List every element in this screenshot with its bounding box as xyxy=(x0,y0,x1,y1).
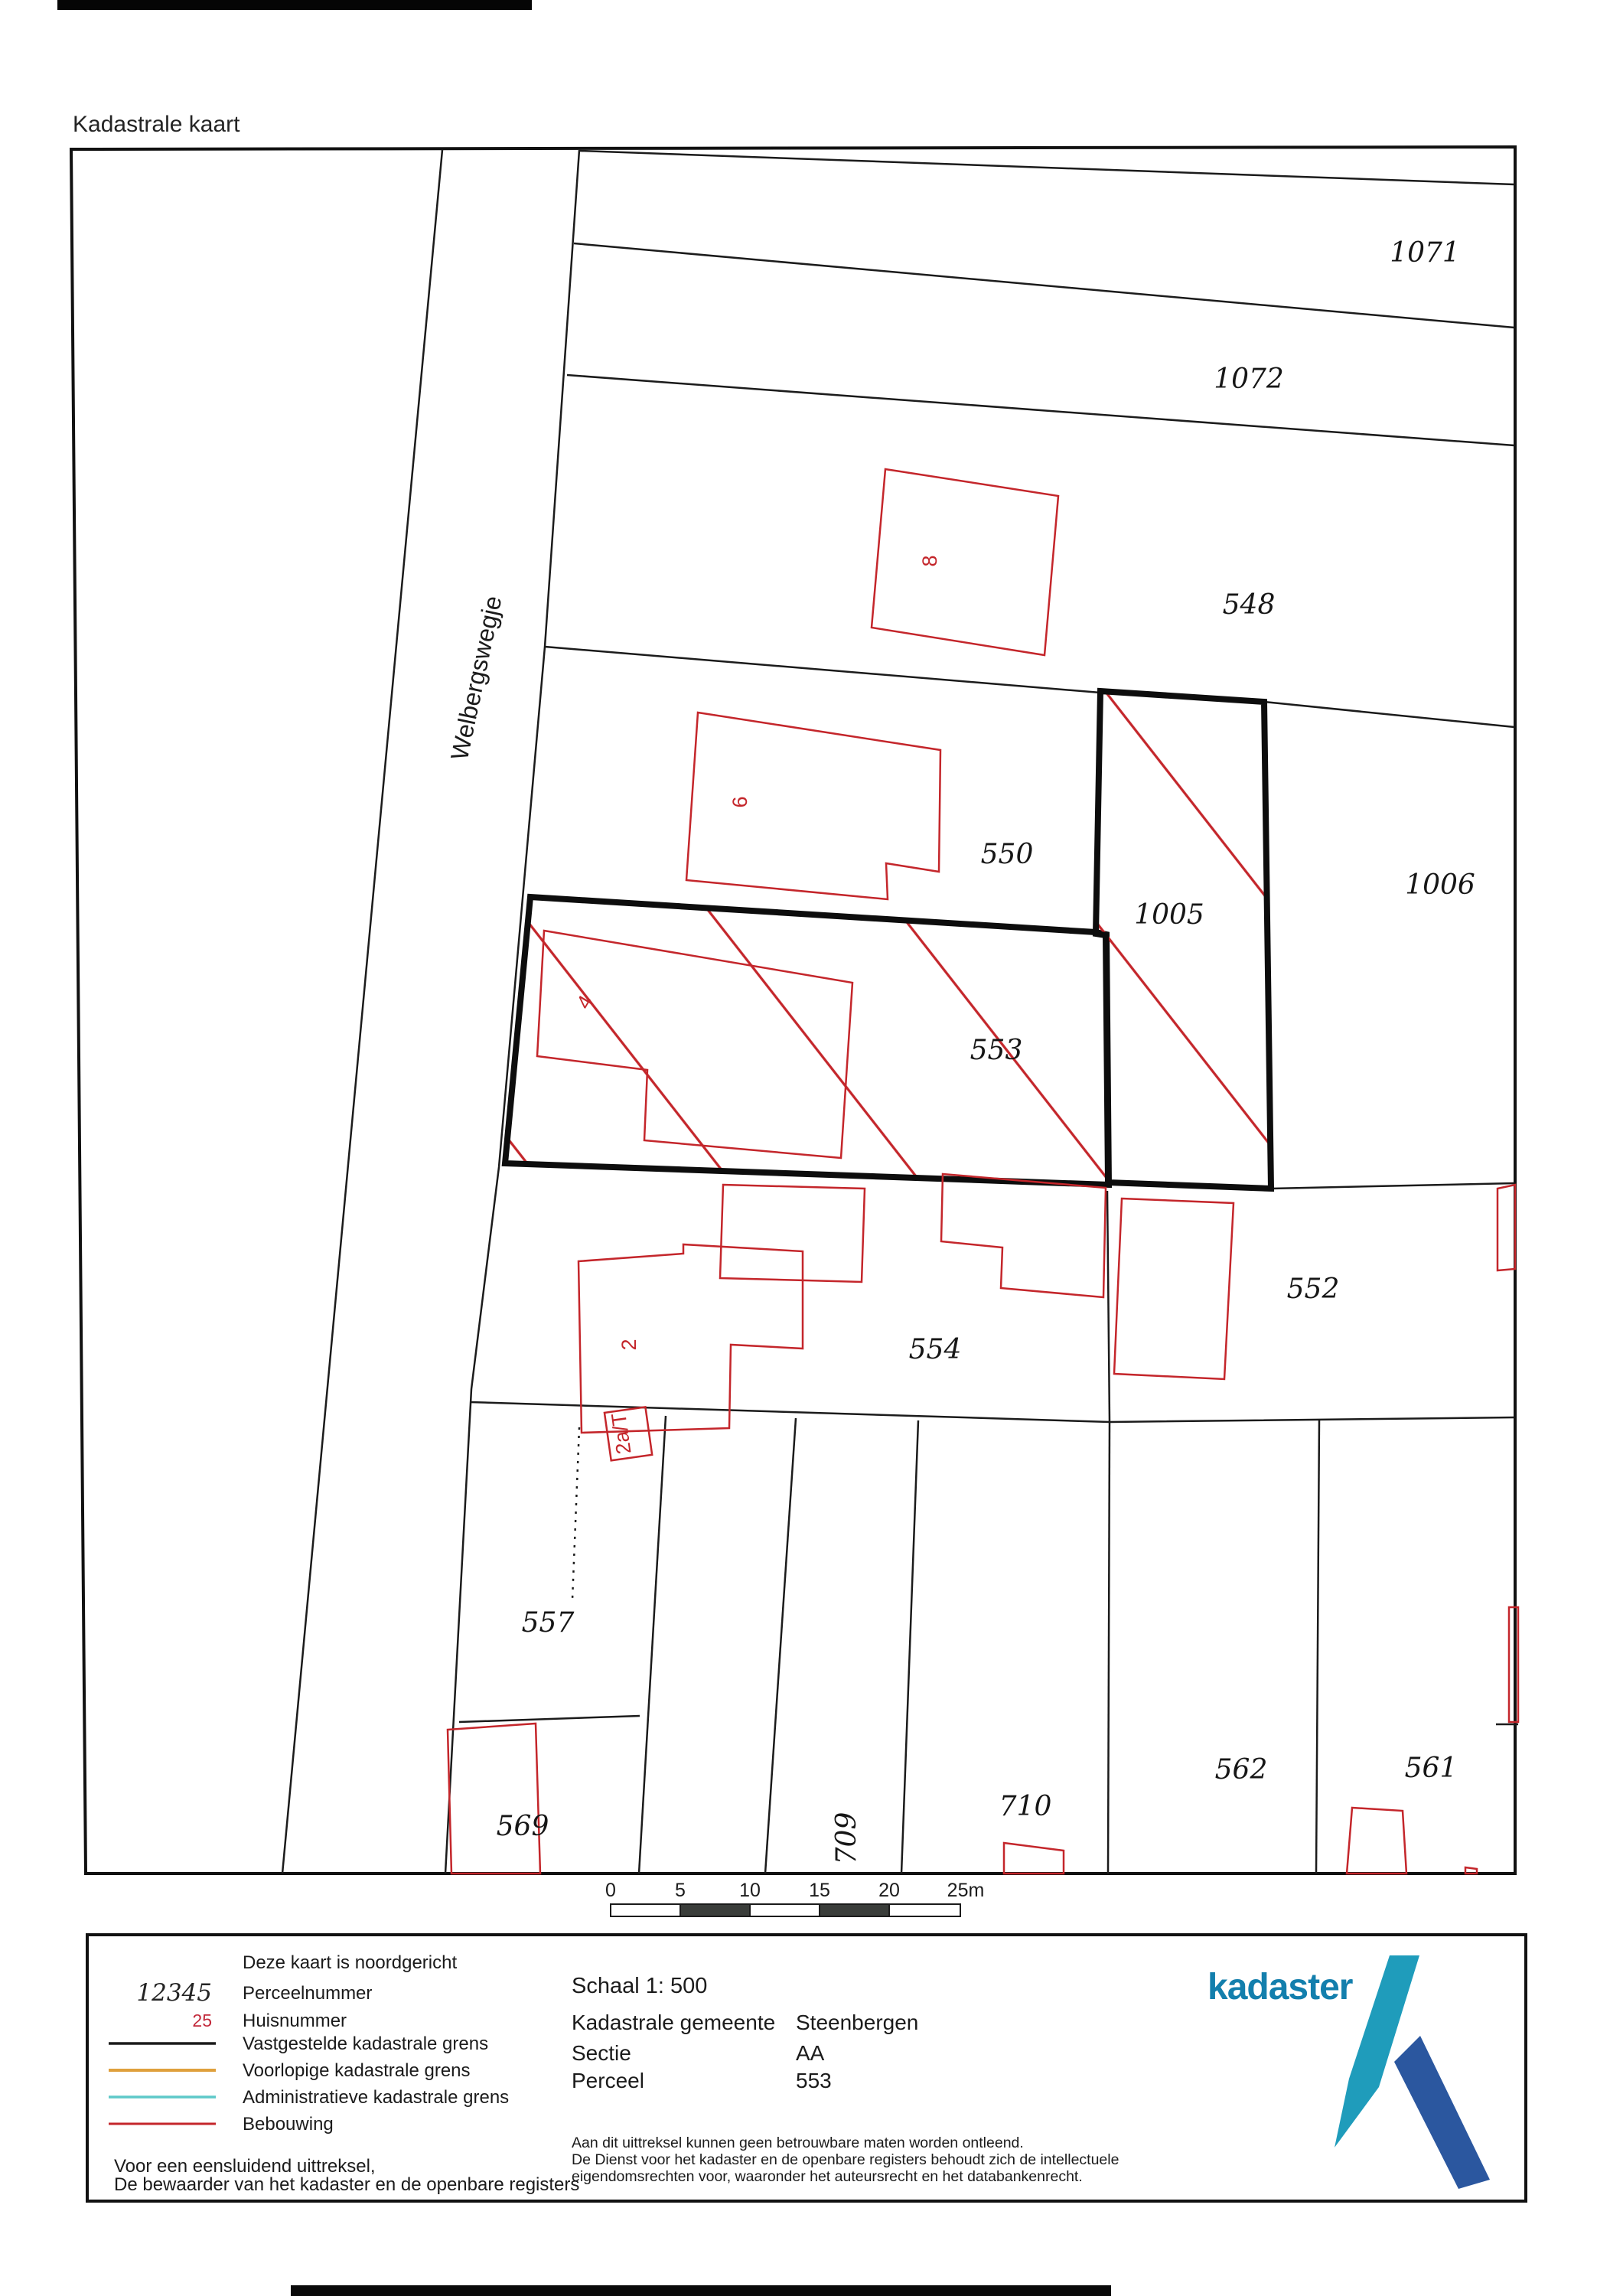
legend-north-note: Deze kaart is noordgericht xyxy=(243,1952,457,1973)
legend-attestation-line1: Voor een eensluidend uittreksel, xyxy=(114,2156,376,2177)
scale-tick-5: 5 xyxy=(675,1880,686,1901)
parcel-label-561: 561 xyxy=(1405,1753,1458,1784)
detail-label-sectie: Sectie xyxy=(572,2041,631,2065)
legend-label-parcelnumber: Perceelnummer xyxy=(243,1983,372,2004)
scale-label: Schaal 1: 500 xyxy=(572,1974,707,1998)
parcel-label-550: 550 xyxy=(981,839,1034,870)
scale-segment-3 xyxy=(750,1904,820,1916)
parcel-label-554: 554 xyxy=(909,1334,962,1365)
scale-segment-2 xyxy=(680,1904,750,1916)
legend-label-bebouwing: Bebouwing xyxy=(243,2114,334,2135)
page-title: Kadastrale kaart xyxy=(73,112,240,137)
detail-label-perceel: Perceel xyxy=(572,2069,644,2092)
parcel-label-1071: 1071 xyxy=(1390,237,1460,269)
disclaimer-line3: eigendomsrechten voor, waaronder het aut… xyxy=(572,2168,1083,2185)
parcel-label-557: 557 xyxy=(522,1607,575,1639)
housenumber-2: 2 xyxy=(618,1339,640,1350)
legend-label-housenumber: Huisnummer xyxy=(243,2011,347,2031)
legend-sample-housenumber: 25 xyxy=(192,2011,212,2030)
parcel-label-1005: 1005 xyxy=(1134,899,1204,931)
kadaster-wordmark: kadaster xyxy=(1207,1967,1353,2007)
disclaimer-line1: Aan dit uittreksel kunnen geen betrouwba… xyxy=(572,2135,1024,2151)
parcel-label-710: 710 xyxy=(999,1791,1052,1822)
scan-artifact-bottom-bar xyxy=(291,2285,1111,2296)
legend-label-vastgesteld: Vastgestelde kadastrale grens xyxy=(243,2033,488,2054)
detail-label-gemeente: Kadastrale gemeente xyxy=(572,2011,775,2034)
scale-bar: 0 5 10 15 20 25m xyxy=(605,1880,984,1916)
disclaimer-line2: De Dienst voor het kadaster en de openba… xyxy=(572,2151,1119,2168)
legend-label-voorlopig: Voorlopige kadastrale grens xyxy=(243,2060,471,2081)
scale-segment-1 xyxy=(611,1904,680,1916)
parcel-label-709: 709 xyxy=(831,1812,862,1865)
scale-tick-10: 10 xyxy=(739,1880,761,1901)
legend-sample-parcelnumber: 12345 xyxy=(136,1979,212,2007)
parcel-label-1072: 1072 xyxy=(1214,364,1284,395)
parcel-1005-outline xyxy=(1096,691,1271,1189)
scale-tick-20: 20 xyxy=(878,1880,900,1901)
housenumber-8: 8 xyxy=(918,555,941,566)
scale-tick-15: 15 xyxy=(809,1880,830,1901)
scale-tick-25m: 25m xyxy=(947,1880,985,1901)
detail-value-gemeente: Steenbergen xyxy=(796,2011,918,2034)
scale-tick-0: 0 xyxy=(605,1880,616,1901)
parcel-label-569: 569 xyxy=(497,1811,549,1842)
scale-segment-5 xyxy=(889,1904,960,1916)
cadastral-extract-page: Kadastrale kaart xyxy=(0,0,1623,2296)
parcel-label-562: 562 xyxy=(1215,1754,1268,1786)
detail-value-sectie: AA xyxy=(796,2041,825,2065)
parcel-label-552: 552 xyxy=(1287,1274,1340,1305)
kadastrale-kaart-canvas: Kadastrale kaart xyxy=(0,0,1623,2296)
legend-label-administratief: Administratieve kadastrale grens xyxy=(243,2087,509,2108)
map-area: Welbergswegje 1071 1072 548 550 1005 100… xyxy=(71,147,1518,1874)
parcel-label-548: 548 xyxy=(1223,589,1276,621)
parcel-label-1006: 1006 xyxy=(1405,869,1475,901)
scale-segment-4 xyxy=(820,1904,889,1916)
scan-artifact-top-bar xyxy=(57,0,532,10)
detail-value-perceel: 553 xyxy=(796,2069,832,2092)
legend-attestation-line2: De bewaarder van het kadaster en de open… xyxy=(114,2174,579,2195)
parcel-label-553: 553 xyxy=(970,1035,1023,1066)
housenumber-6: 6 xyxy=(728,796,751,807)
